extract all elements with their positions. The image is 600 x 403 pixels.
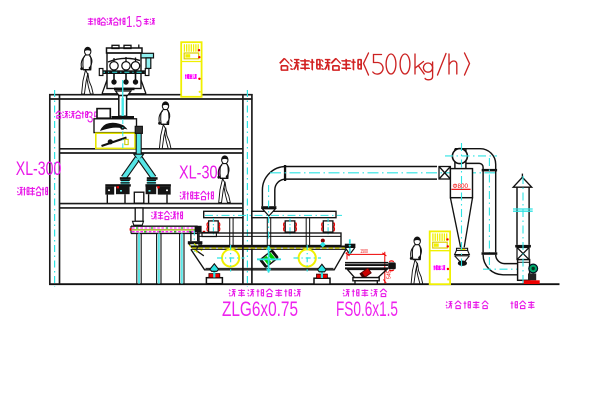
svg-text:ZLG6x0.75: ZLG6x0.75 — [222, 298, 298, 321]
svg-text:FS0.6x1.5: FS0.6x1.5 — [336, 298, 398, 321]
svg-text:1.5: 1.5 — [126, 14, 142, 31]
svg-text:545: 545 — [386, 271, 392, 280]
svg-text:1500: 1500 — [360, 249, 368, 255]
svg-text:XL-300: XL-300 — [16, 159, 62, 180]
